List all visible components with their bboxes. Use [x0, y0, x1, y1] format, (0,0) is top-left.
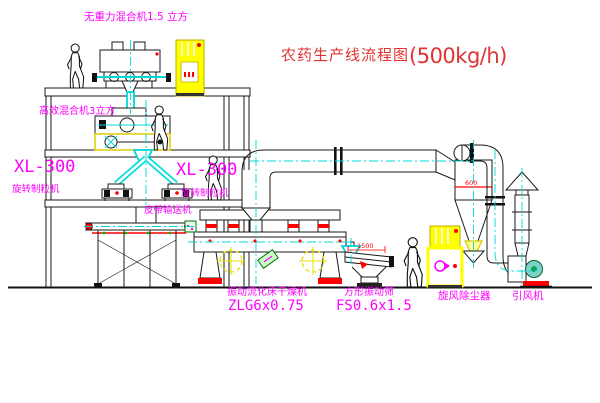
- sieve-name-label: 方形振动筛: [344, 288, 394, 299]
- diagram-canvas: 1500 600 无重力混合机1.5 立方 高效混合机3立方 XL-300 旋转…: [0, 0, 600, 403]
- control-cabinet-bottom: [428, 226, 462, 288]
- fan-label: 引风机: [512, 291, 544, 302]
- belt-conveyor-label: 皮带输送机: [144, 206, 192, 216]
- cyclone-label: 旋风除尘器: [438, 291, 491, 302]
- dryer-name-label: 振动流化床干燥机: [227, 288, 307, 299]
- dryer-model-label: ZLG6x0.75: [228, 299, 304, 314]
- granulator-left: [102, 184, 132, 201]
- cyclone-diameter-dimension: 600: [465, 179, 477, 187]
- granulator-left-model-label: XL-300: [14, 159, 75, 177]
- control-cabinet-top: [176, 40, 204, 96]
- granulator-right-name-label: 旋转制粒机: [181, 189, 229, 199]
- high-efficiency-mixer-label: 高效混合机3立方: [39, 107, 115, 118]
- belt-conveyor: [85, 223, 192, 287]
- title-capacity: (500kg/h): [409, 44, 507, 68]
- diagram-title: 农药生产线流程图(500kg/h): [281, 44, 507, 68]
- worker-icon: [404, 238, 422, 287]
- granulator-right-model-label: XL-300: [176, 162, 237, 180]
- worker-icon: [68, 44, 84, 88]
- title-text: 农药生产线流程图: [281, 44, 409, 68]
- fluid-bed-dryer: [185, 210, 360, 284]
- granulator-left-name-label: 旋转制粒机: [12, 185, 60, 195]
- gravity-mixer-label: 无重力混合机1.5 立方: [84, 12, 188, 23]
- sieve-model-label: FS0.6x1.5: [336, 299, 412, 314]
- sieve-length-dimension: 1500: [357, 242, 374, 250]
- gravity-free-mixer: [92, 42, 171, 110]
